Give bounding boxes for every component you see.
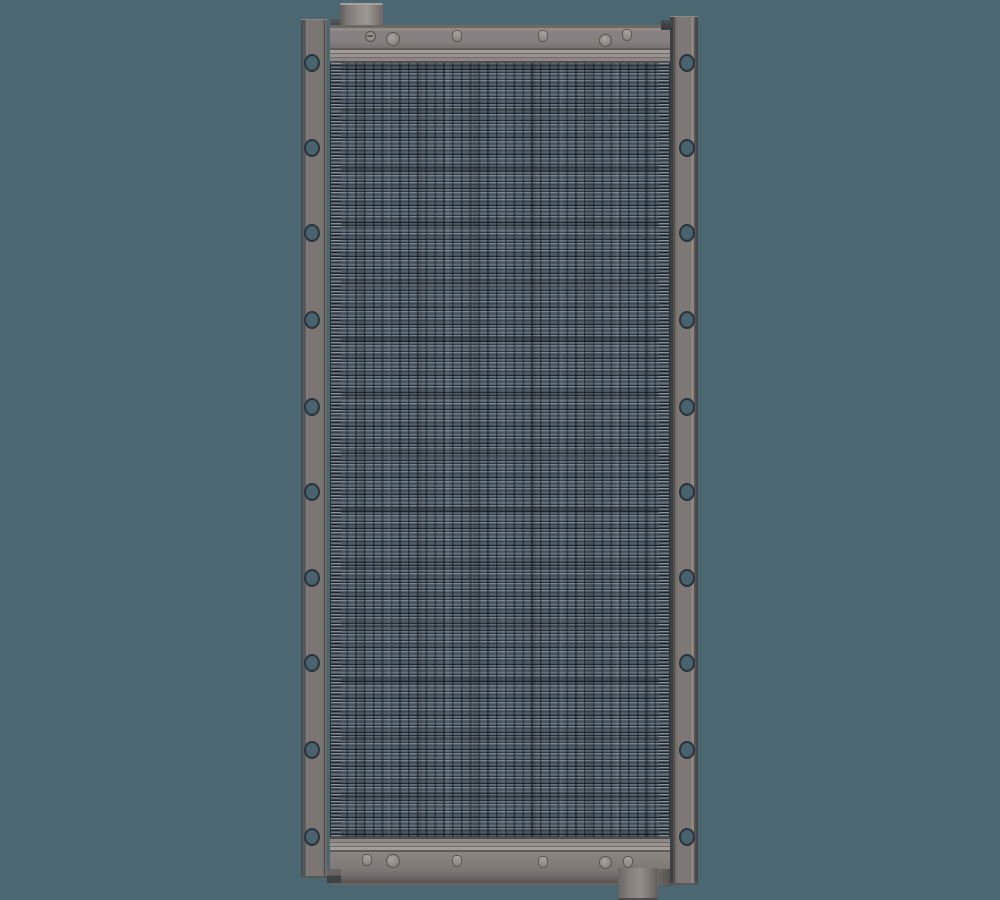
bracket-flange-notch: [661, 20, 672, 30]
top-header-plate: [330, 48, 670, 63]
bracket-bolt-hole: [304, 398, 320, 416]
cap-bolt-head: [622, 29, 632, 41]
boss-bolt-head: [386, 32, 400, 46]
radiator-fin-core: [330, 63, 670, 837]
bracket-bolt-hole: [679, 654, 695, 672]
bracket-bolt-hole: [679, 139, 695, 157]
bracket-bolt-hole: [679, 54, 695, 72]
core-fin-edge-right: [659, 63, 669, 837]
bracket-bolt-hole: [679, 224, 695, 242]
cap-bolt-head: [623, 856, 633, 868]
bracket-bolt-hole: [304, 311, 320, 329]
bracket-bolt-hole: [679, 398, 695, 416]
bracket-bolt-hole: [304, 483, 320, 501]
cap-bolt-head: [538, 30, 548, 42]
bracket-bolt-hole: [304, 654, 320, 672]
bracket-bolt-hole: [679, 741, 695, 759]
bracket-bolt-hole: [304, 828, 320, 846]
outlet-pipe: [618, 868, 658, 900]
bottom-header-plate: [330, 837, 670, 852]
bracket-bolt-hole: [679, 311, 695, 329]
cap-bolt-head: [362, 854, 372, 866]
bracket-bolt-hole: [679, 569, 695, 587]
core-fin-edge-left: [331, 63, 341, 837]
cap-bolt-head: [452, 30, 462, 42]
bracket-bolt-hole: [304, 54, 320, 72]
bracket-bolt-hole: [304, 139, 320, 157]
boss-bolt-head: [599, 856, 612, 869]
top-header-tank: [330, 25, 670, 48]
boss-bolt-head: [386, 854, 400, 868]
slot-screw-bolt-head: [365, 31, 376, 42]
boss-bolt-head: [599, 34, 612, 47]
bracket-foot: [327, 869, 341, 883]
cap-bolt-head: [452, 855, 462, 867]
bracket-bolt-hole: [304, 224, 320, 242]
bracket-bolt-hole: [304, 569, 320, 587]
render-viewport: [0, 0, 1000, 900]
bracket-bolt-hole: [679, 828, 695, 846]
bracket-bolt-hole: [679, 483, 695, 501]
bracket-bolt-hole: [304, 741, 320, 759]
cap-bolt-head: [538, 856, 548, 868]
